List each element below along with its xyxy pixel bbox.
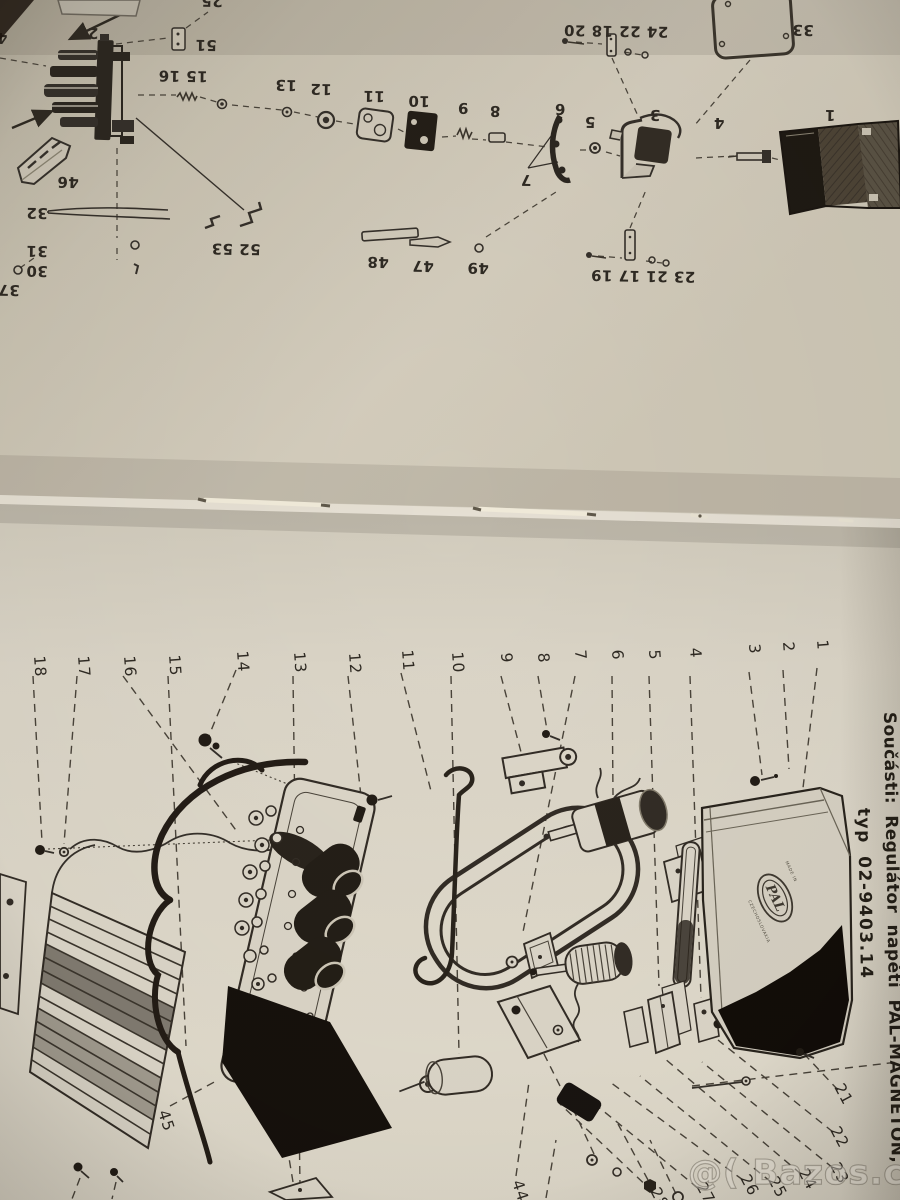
part-number-label: 4 <box>713 114 724 132</box>
part-number-label: 13 <box>275 76 297 94</box>
part-number-label: 1 <box>813 639 832 651</box>
part-number-label: 33 <box>792 21 814 39</box>
top-page-paper <box>0 0 900 518</box>
catalog-title-line2: typ 02-9403.14 <box>853 808 876 980</box>
part-number-label: 11 <box>398 649 417 672</box>
book-photo: PAL MADE IN CZECHOSLOVAKIA Součásti: Reg… <box>0 0 900 1200</box>
part-number-label: 16 <box>120 655 139 678</box>
part-number-label: 8 <box>534 652 553 664</box>
housing-drawing-top <box>780 121 900 214</box>
part-number-label: 5 <box>645 649 664 661</box>
part-number-label: 52 53 <box>211 240 261 259</box>
part-number-label: 7 <box>520 171 531 189</box>
part-number-label: 47 <box>412 257 434 275</box>
part-number-label: 14 <box>233 650 252 673</box>
part-number-label: 31 <box>26 242 48 260</box>
small-screw-icon <box>542 730 550 738</box>
adjacent-figure-edge <box>58 0 140 16</box>
bottom-page: PAL MADE IN CZECHOSLOVAKIA Součásti: Reg… <box>0 490 900 1200</box>
part-number-label: 2 <box>87 24 98 42</box>
part-number-label: 48 <box>367 253 389 271</box>
part-number-label: 12 <box>310 80 332 98</box>
part-number-label: 30 <box>26 262 48 280</box>
part-number-label: 6 <box>554 100 565 118</box>
part-number-label: 32 <box>26 204 48 222</box>
part-number-label: 5 <box>584 113 595 131</box>
part-number-label: 51 <box>195 36 217 54</box>
part-number-label: 3 <box>745 643 764 655</box>
part-number-label: 15 16 <box>158 67 208 86</box>
part-number-label: 3 <box>649 106 660 124</box>
part-number-label: 37 <box>0 281 20 299</box>
top-page: 25425115 1613121110986573413324 22 18 20… <box>0 0 900 518</box>
part-number-label: 4 <box>686 647 705 659</box>
part-number-label: 7 <box>571 649 590 661</box>
part-number-label: 9 <box>457 99 468 117</box>
rivet-icon <box>199 734 212 747</box>
part-number-label: 8 <box>489 102 500 120</box>
part-number-label: 46 <box>57 173 79 191</box>
part-number-label: 25 <box>201 0 223 10</box>
part-number-label: 11 <box>363 87 385 105</box>
part-number-label: 18 <box>30 655 49 678</box>
part-number-label: 12 <box>345 652 364 675</box>
part-number-label: 49 <box>467 259 489 277</box>
part-number-label: 2 <box>779 641 798 653</box>
part-number-label: 6 <box>608 649 627 661</box>
part-number-label: 13 <box>290 651 309 674</box>
part-number-label: 9 <box>497 652 516 664</box>
exploded-parts-catalog-photo: PAL MADE IN CZECHOSLOVAKIA Součásti: Reg… <box>0 0 900 1200</box>
part-number-label: 24 22 18 20 <box>563 21 668 41</box>
part-number-label: 17 <box>74 655 93 678</box>
part-number-label: 1 <box>824 106 835 124</box>
part-number-label: 10 <box>448 651 467 674</box>
part-number-label: 10 <box>408 92 430 110</box>
part-number-label: 23 21 17 19 <box>590 266 695 286</box>
part-number-label: 15 <box>165 654 184 677</box>
bazos-watermark: @( Bazos.cz <box>688 1153 900 1193</box>
